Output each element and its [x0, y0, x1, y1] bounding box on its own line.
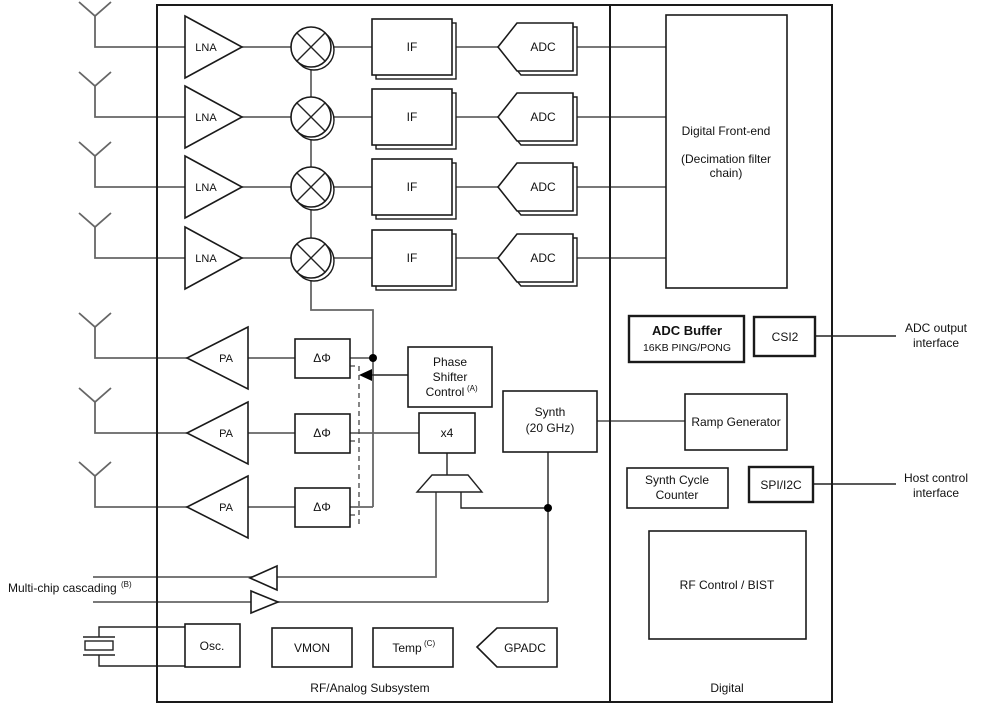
- adc-label: ADC: [530, 110, 556, 124]
- ramp-generator-label: Ramp Generator: [691, 415, 780, 429]
- mixer-icon: [291, 167, 334, 210]
- xtal-osc-wire: [99, 627, 185, 666]
- rx4-antenna-icon: [79, 213, 185, 258]
- dfe-sub1: (Decimation filter: [681, 152, 771, 166]
- mux-synth-wire: [461, 452, 548, 602]
- ramp-generator-block: Ramp Generator: [685, 394, 787, 450]
- synth-block: Synth (20 GHz): [503, 391, 597, 452]
- osc-block: Osc.: [185, 624, 240, 667]
- adc-buffer-sub: 16KB PING/PONG: [643, 342, 731, 354]
- psc-line1: Phase: [433, 355, 467, 369]
- synth-line2: (20 GHz): [526, 421, 575, 435]
- phase-shifter-label: ΔΦ: [313, 426, 331, 440]
- adc-label: ADC: [530, 40, 556, 54]
- host-control-interface-line1: Host control: [904, 471, 968, 485]
- synth-line1: Synth: [535, 405, 566, 419]
- digital-section: Digital Front-end (Decimation filter cha…: [627, 15, 815, 639]
- lo-mux-icon: [417, 475, 482, 492]
- if-block: IF: [372, 159, 456, 219]
- analog-misc-section: Osc. VMON Temp (C) GPADC: [83, 624, 557, 667]
- cascade-in-buffer-icon: [251, 591, 278, 613]
- synth-cycle-counter-block: Synth Cycle Counter: [627, 468, 728, 508]
- spi-i2c-label: SPI/I2C: [760, 478, 802, 492]
- x4-label: x4: [441, 426, 454, 440]
- dfe-sub2: chain): [710, 166, 743, 180]
- if-label: IF: [407, 40, 418, 54]
- adc-block: ADC: [498, 234, 577, 286]
- osc-label: Osc.: [200, 639, 225, 653]
- digital-section-label: Digital: [710, 681, 743, 695]
- pa-label: PA: [219, 502, 234, 514]
- temp-label: Temp: [392, 641, 422, 655]
- lo-synth-section: Phase Shifter Control (A) x4 Synth (20 G…: [250, 347, 597, 613]
- rx-chains: LNA LNA LNA LNA IF IF: [185, 16, 577, 290]
- psc-line3: Control: [426, 385, 465, 399]
- crystal-icon: [83, 637, 115, 655]
- arrowhead-icon: [359, 369, 372, 381]
- lna-label: LNA: [195, 112, 217, 124]
- pa-amp-icon: [187, 476, 248, 538]
- rx3-antenna-icon: [79, 142, 185, 187]
- if-label: IF: [407, 110, 418, 124]
- lna-label: LNA: [195, 182, 217, 194]
- phase-shifter-block: ΔΦ: [295, 488, 350, 527]
- pa-amp-icon: [187, 402, 248, 464]
- dfe-title: Digital Front-end: [682, 124, 771, 138]
- tx2-antenna-icon: [79, 388, 187, 433]
- adc-buffer-title: ADC Buffer: [652, 323, 722, 338]
- rx1-antenna-icon: [79, 2, 185, 47]
- csi2-label: CSI2: [772, 330, 799, 344]
- diagram-canvas: LNA LNA LNA LNA IF IF: [0, 0, 981, 708]
- phase-shifter-label: ΔΦ: [313, 351, 331, 365]
- mixer-icon: [291, 27, 334, 70]
- adc-block: ADC: [498, 163, 577, 215]
- adc-block: ADC: [498, 23, 577, 75]
- x4-multiplier-block: x4: [419, 413, 475, 453]
- psc-control-bus: [350, 366, 359, 524]
- lna-label: LNA: [195, 42, 217, 54]
- vmon-label: VMON: [294, 641, 330, 655]
- junction-dot: [369, 354, 377, 362]
- synth-cycle-line2: Counter: [656, 488, 699, 502]
- temp-footnote: (C): [424, 639, 435, 648]
- rf-control-bist-block: RF Control / BIST: [649, 531, 806, 639]
- mixer-icon: [291, 238, 334, 281]
- if-label: IF: [407, 180, 418, 194]
- cascade-footnote: (B): [121, 580, 132, 589]
- digital-front-end-block: Digital Front-end (Decimation filter cha…: [666, 15, 787, 288]
- pa-label: PA: [219, 428, 234, 440]
- if-block: IF: [372, 230, 456, 290]
- cascade-out-buffer-icon: [250, 566, 277, 590]
- junction-dot: [544, 504, 552, 512]
- rx2-antenna-icon: [79, 72, 185, 117]
- phase-shifter-block: ΔΦ: [295, 339, 350, 378]
- rf-analog-section-label: RF/Analog Subsystem: [310, 681, 429, 695]
- if-block: IF: [372, 19, 456, 79]
- synth-cycle-line1: Synth Cycle: [645, 473, 709, 487]
- radar-soc-block-diagram: LNA LNA LNA LNA IF IF: [0, 0, 981, 708]
- adc-block: ADC: [498, 93, 577, 145]
- adc-buffer-block: ADC Buffer 16KB PING/PONG: [629, 316, 744, 362]
- phase-shifter-control-block: Phase Shifter Control (A): [408, 347, 492, 407]
- tx3-antenna-icon: [79, 462, 187, 507]
- adc-label: ADC: [530, 251, 556, 265]
- tx1-antenna-icon: [79, 313, 187, 358]
- pa-amp-icon: [187, 327, 248, 389]
- psc-footnote: (A): [467, 384, 478, 393]
- spi-i2c-block: SPI/I2C: [749, 467, 813, 502]
- adc-label: ADC: [530, 180, 556, 194]
- phase-shifter-block: ΔΦ: [295, 414, 350, 453]
- vmon-block: VMON: [272, 628, 352, 667]
- if-label: IF: [407, 251, 418, 265]
- host-control-interface-line2: interface: [913, 486, 959, 500]
- psc-line2: Shifter: [433, 370, 468, 384]
- lna-label: LNA: [195, 253, 217, 265]
- if-block: IF: [372, 89, 456, 149]
- rf-control-bist-label: RF Control / BIST: [680, 578, 775, 592]
- temp-block: Temp (C): [373, 628, 453, 667]
- phase-shifter-label: ΔΦ: [313, 500, 331, 514]
- gpadc-block: GPADC: [477, 628, 557, 667]
- gpadc-label: GPADC: [504, 641, 546, 655]
- pa-label: PA: [219, 353, 234, 365]
- adc-output-interface-line1: ADC output: [905, 321, 968, 335]
- adc-output-interface-line2: interface: [913, 336, 959, 350]
- mixer-icon: [291, 97, 334, 140]
- cascade-label: Multi-chip cascading: [8, 581, 117, 595]
- csi2-block: CSI2: [754, 317, 815, 356]
- cascade-out-wire: [93, 492, 436, 577]
